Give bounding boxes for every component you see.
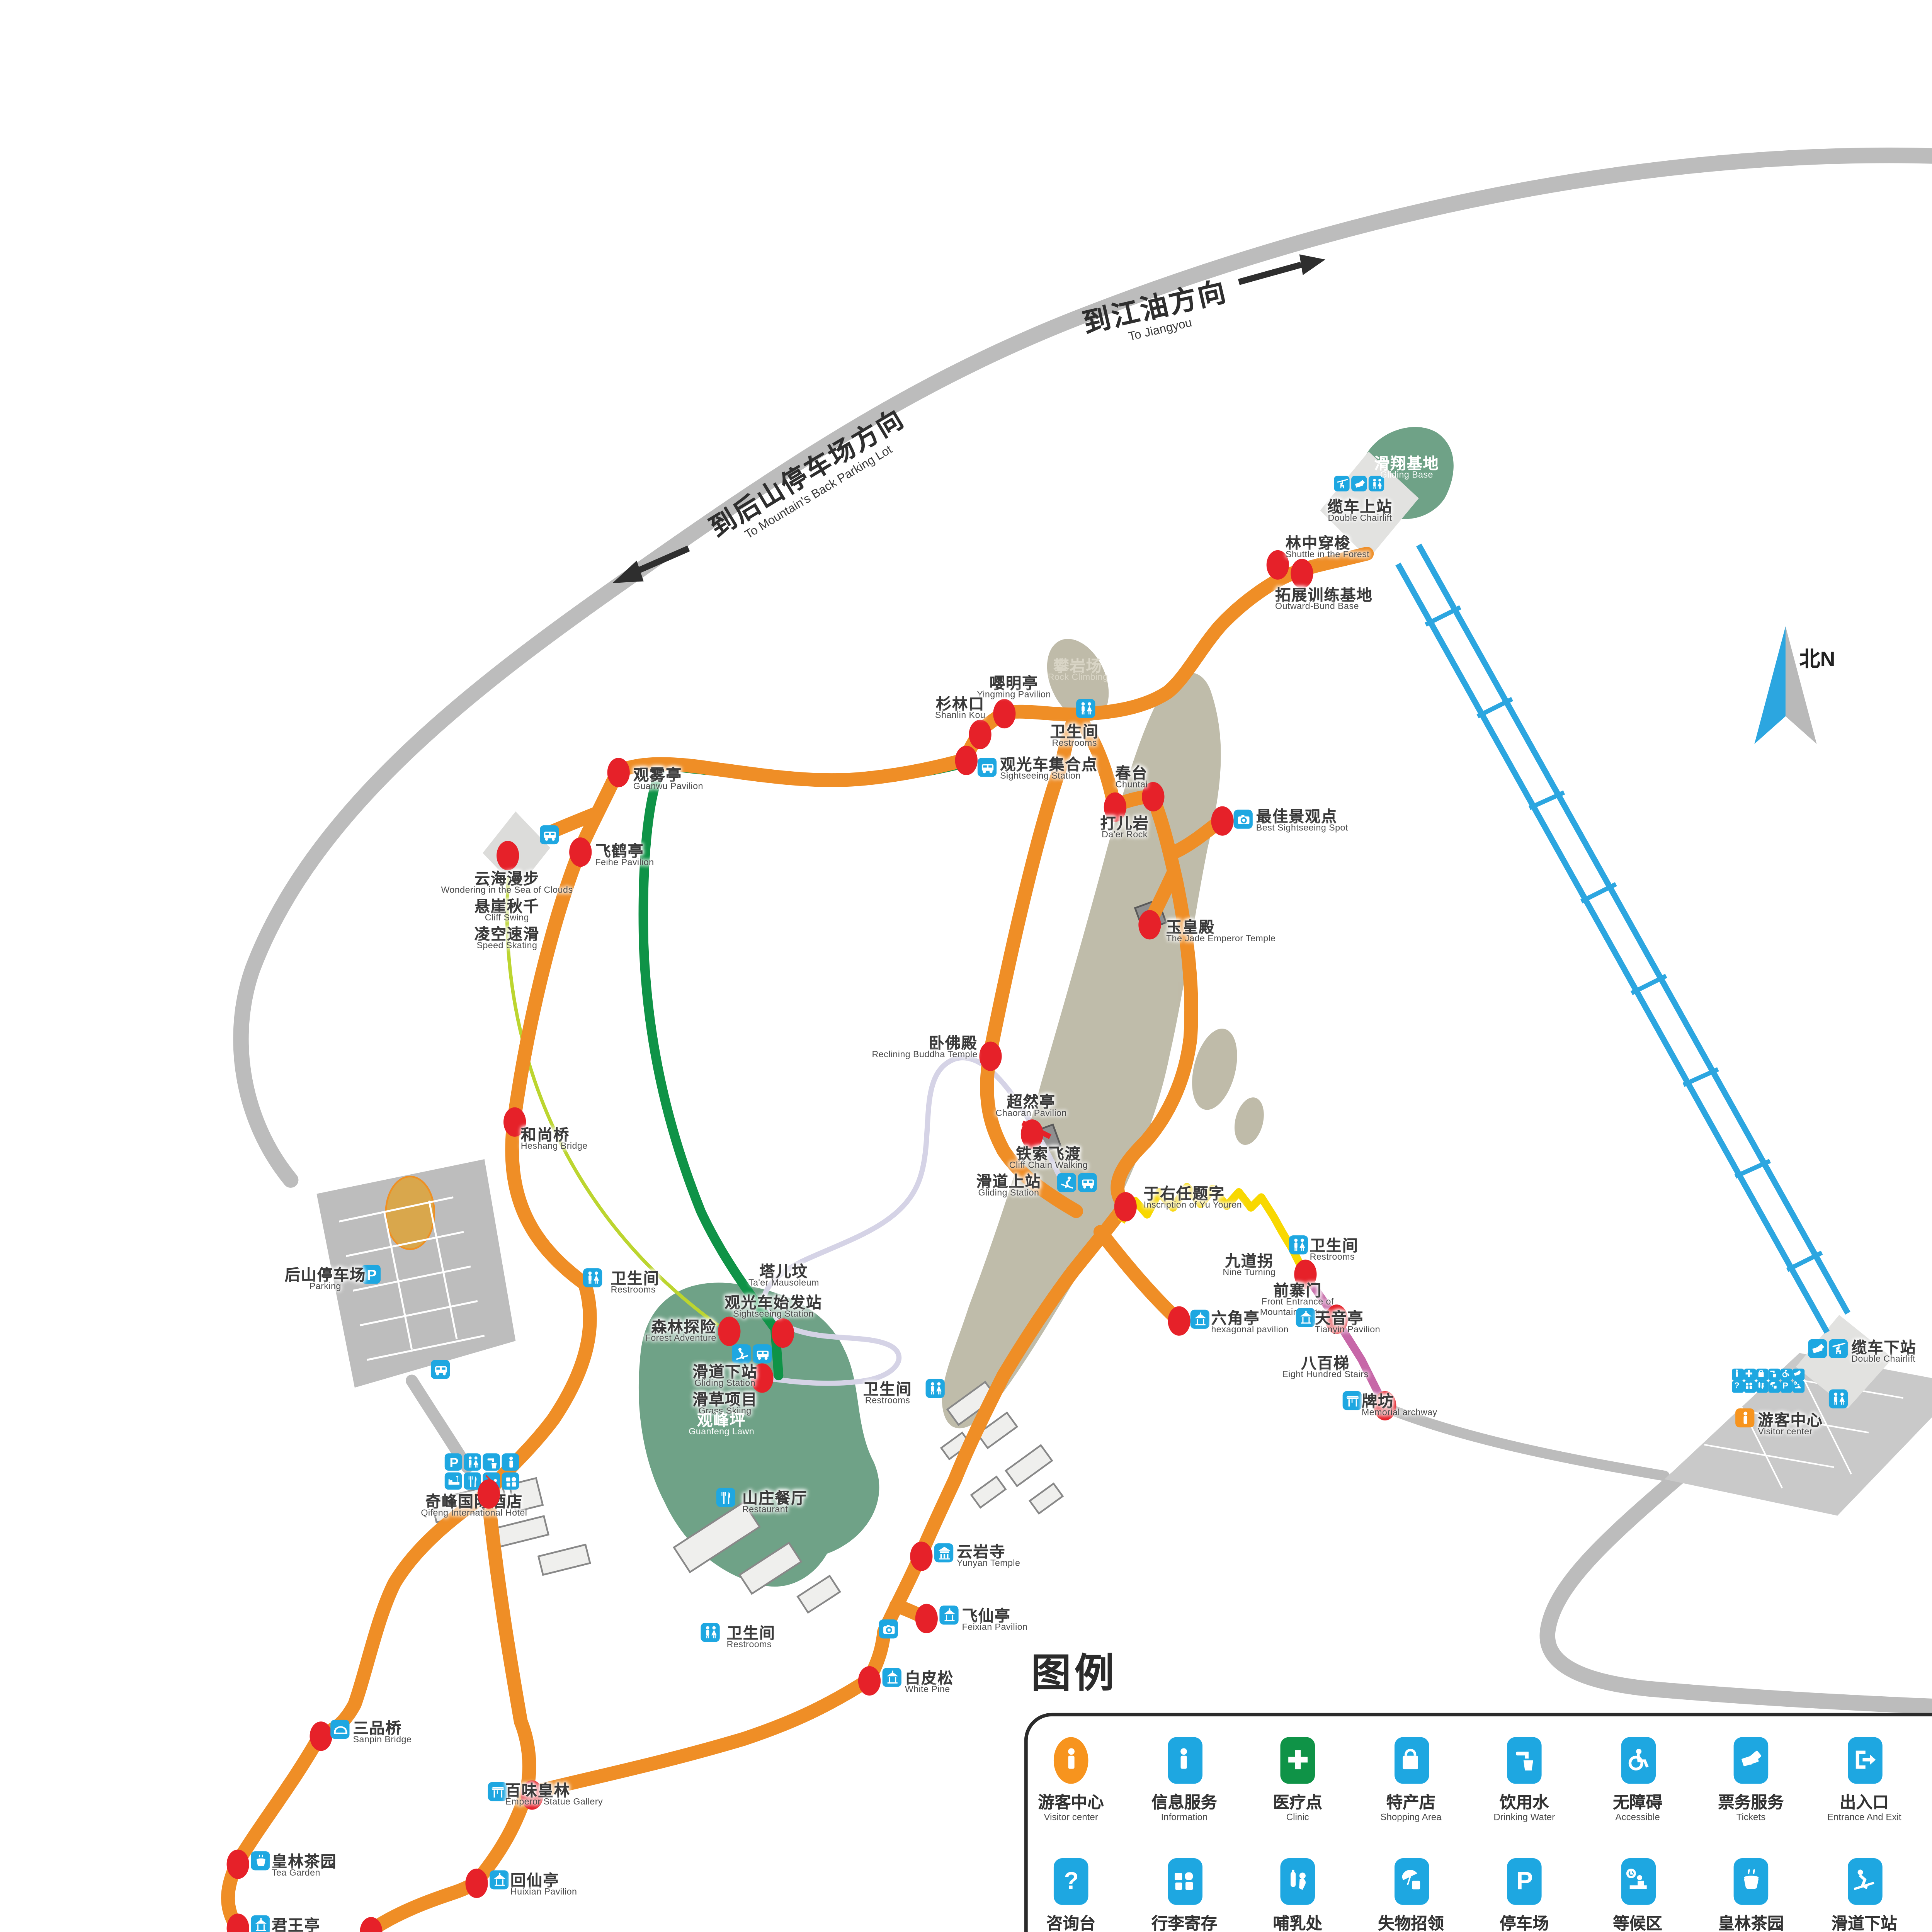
sight-spot-dot bbox=[968, 719, 990, 748]
info-icon bbox=[502, 1453, 519, 1471]
poi-label: 观雾亭Guanwu Pavilion bbox=[633, 767, 703, 794]
poi-label: 缆车上站Double Chairlift bbox=[1327, 498, 1392, 526]
q-icon bbox=[1732, 1381, 1743, 1392]
sight-spot-dot bbox=[1020, 1119, 1043, 1148]
sight-spot-dot bbox=[857, 1665, 880, 1695]
poi-label: 八百梯Eight Hundred Stairs bbox=[1282, 1355, 1368, 1382]
wc-icon bbox=[1076, 699, 1095, 718]
poi-label: 观光车集合点Sightseeing Station bbox=[1000, 756, 1098, 784]
baby-icon bbox=[1756, 1381, 1767, 1392]
wc-icon bbox=[1829, 1389, 1848, 1408]
sight-spot-dot bbox=[1265, 549, 1288, 579]
tea-icon bbox=[251, 1851, 270, 1870]
poi-label: 拓展训练基地Outward-Bund Base bbox=[1275, 587, 1373, 614]
legend-item-accessible: 无障碍Accessible bbox=[1582, 1737, 1693, 1824]
lost-icon bbox=[1768, 1381, 1779, 1392]
sight-spot-dot bbox=[568, 837, 591, 866]
wc-icon bbox=[701, 1623, 719, 1642]
poi-label: 云岩寺Yunyan Temple bbox=[957, 1543, 1020, 1571]
poi-label: 杉林口Shanlin Kou bbox=[935, 696, 985, 723]
legend-item-visitor-center: 游客中心Visitor center bbox=[1015, 1737, 1126, 1824]
legend-item-enquiry: 咨询台Enquiry bbox=[1015, 1858, 1126, 1932]
legend-item-entrance-and-exit: 出入口Entrance And Exit bbox=[1809, 1737, 1920, 1824]
pav-icon bbox=[1190, 1310, 1209, 1329]
poi-label: 滑道下站Gliding Station滑草项目Grass Skiing bbox=[692, 1363, 757, 1418]
water-icon bbox=[1507, 1737, 1542, 1784]
poi-label: 卧佛殿Reclining Buddha Temple bbox=[872, 1035, 978, 1062]
poi-label: 牌坊Memorial archway bbox=[1362, 1393, 1437, 1420]
poi-label: 打儿岩Da'er Rock bbox=[1100, 815, 1149, 842]
poi-label: 游客中心Visitor center bbox=[1758, 1412, 1823, 1439]
pav-icon bbox=[939, 1605, 958, 1624]
poi-label: 飞鹤亭Feihe Pavilion bbox=[595, 843, 654, 870]
legend-item-clinic: 医疗点Clinic bbox=[1242, 1737, 1353, 1824]
sight-spot-dot bbox=[309, 1721, 331, 1750]
q-icon bbox=[1054, 1858, 1088, 1905]
i-icon bbox=[1054, 1737, 1088, 1784]
wheel-icon bbox=[1781, 1369, 1792, 1380]
ticket-icon bbox=[1351, 476, 1367, 491]
temple-icon bbox=[934, 1543, 953, 1562]
cross-icon bbox=[1744, 1369, 1755, 1380]
sight-spot-dot bbox=[909, 1541, 932, 1570]
wait-icon bbox=[1793, 1381, 1804, 1392]
legend-item-information: 信息服务Information bbox=[1129, 1737, 1240, 1824]
poi-label: 观光车始发站Sightseeing Station bbox=[724, 1294, 822, 1321]
sight-spot-dot bbox=[606, 757, 629, 786]
bag-icon bbox=[1756, 1369, 1767, 1380]
bus-icon bbox=[753, 1344, 772, 1363]
sight-spot-dot bbox=[464, 1868, 487, 1897]
baby-icon bbox=[1280, 1858, 1315, 1905]
ski-down-icon bbox=[732, 1344, 751, 1363]
sight-spot-dot bbox=[771, 1318, 793, 1347]
sight-spot-dot bbox=[1113, 1191, 1136, 1221]
legend-item-drinking-water: 饮用水Drinking Water bbox=[1469, 1737, 1580, 1824]
sight-spot-dot bbox=[359, 1916, 381, 1932]
poi-label: 山庄餐厅Restaurant bbox=[742, 1490, 807, 1517]
pav-icon bbox=[490, 1870, 509, 1889]
wc-icon bbox=[464, 1453, 481, 1471]
sight-spot-dot bbox=[954, 745, 976, 774]
poi-label: 卫生间Restrooms bbox=[1310, 1237, 1359, 1265]
ticket-icon bbox=[1734, 1737, 1769, 1784]
p-icon bbox=[445, 1453, 462, 1471]
lugg-icon bbox=[1167, 1858, 1202, 1905]
wc-icon bbox=[926, 1379, 945, 1398]
ski-down-icon bbox=[1847, 1858, 1882, 1905]
legend-item-restrooms: 卫生间Restrooms bbox=[1922, 1737, 1932, 1824]
sight-spot-dot bbox=[717, 1316, 740, 1345]
poi-label: 塔儿坟Ta'er Mausoleum bbox=[748, 1263, 819, 1291]
legend-item-parking: 停车场Parking bbox=[1469, 1858, 1580, 1932]
exit-icon bbox=[1847, 1737, 1882, 1784]
lift-icon bbox=[1334, 476, 1349, 491]
poi-label: 卫生间Restrooms bbox=[863, 1381, 912, 1408]
poi-label: 九道拐Nine Turning bbox=[1223, 1253, 1276, 1280]
poi-label: 攀岩场Rock Climbing bbox=[1048, 658, 1108, 685]
poi-label: 卫生间Restrooms bbox=[611, 1270, 660, 1298]
poi-label: 滑翔基地Gliding Base bbox=[1374, 455, 1439, 483]
poi-label: 最佳景观点Best Sightseeing Spot bbox=[1256, 808, 1348, 835]
poi-label: 超然亭Chaoran Pavilion bbox=[996, 1094, 1067, 1121]
poi-label: 天音亭Tianyin Pavilion bbox=[1315, 1310, 1380, 1337]
lugg-icon bbox=[502, 1473, 519, 1490]
p-icon bbox=[1507, 1858, 1542, 1905]
poi-label: 卫生间Restrooms bbox=[727, 1625, 776, 1652]
poi-label: 卫生间Restrooms bbox=[1050, 723, 1099, 751]
poi-label: 嘤明亭Yingming Pavilion bbox=[977, 675, 1051, 702]
sight-spot-dot bbox=[914, 1603, 937, 1633]
legend-title: 图例 bbox=[1031, 1640, 1118, 1699]
pav-icon bbox=[883, 1668, 901, 1687]
bus-icon bbox=[431, 1360, 450, 1379]
wait-icon bbox=[1620, 1858, 1655, 1905]
wc-icon bbox=[583, 1268, 602, 1287]
sight-spot-dot bbox=[1138, 909, 1160, 939]
poi-label: 森林探险Forest Adventure bbox=[645, 1318, 716, 1346]
poi-label: 林中穿梭Shuttle in the Forest bbox=[1286, 535, 1369, 562]
poi-label: 飞仙亭Feixian Pavilion bbox=[962, 1607, 1028, 1635]
poi-label: 皇林茶园Tea Garden bbox=[272, 1853, 337, 1881]
ticket-icon bbox=[1808, 1339, 1827, 1358]
sight-spot-dot bbox=[1167, 1305, 1189, 1335]
sight-spot-dot bbox=[1210, 805, 1233, 835]
lost-icon bbox=[1394, 1858, 1429, 1905]
legend-item-lost-and-found: 失物招领Lost And Found bbox=[1355, 1858, 1466, 1932]
wheel-icon bbox=[1620, 1737, 1655, 1784]
bag-icon bbox=[1394, 1737, 1429, 1784]
poi-label: 春台Chuntai bbox=[1115, 765, 1148, 792]
legend-item-gliding-station: 滑道下站Gliding Station bbox=[1809, 1858, 1920, 1932]
water-icon bbox=[483, 1453, 500, 1471]
water-icon bbox=[1768, 1369, 1779, 1380]
poi-label: 滑道上站Gliding Station bbox=[976, 1173, 1041, 1201]
lift-icon bbox=[1829, 1339, 1848, 1358]
bus-icon bbox=[540, 825, 559, 844]
sight-spot-dot bbox=[226, 1913, 248, 1932]
sight-spot-dot bbox=[978, 1041, 1001, 1070]
wc-icon bbox=[1289, 1235, 1308, 1254]
legend-item-tickets: 票务服务Tickets bbox=[1696, 1737, 1806, 1824]
bridge-icon bbox=[330, 1720, 349, 1739]
legend-item-waiting-area: 等候区Waiting Area bbox=[1582, 1858, 1693, 1932]
poi-label: 铁索飞渡Cliff Chain Walking bbox=[1009, 1145, 1088, 1173]
poi-label: 缆车下站Double Chairlift bbox=[1851, 1339, 1916, 1367]
poi-label: 云海漫步Wondering in the Sea of Clouds悬崖秋千Cl… bbox=[441, 870, 573, 952]
pav-icon bbox=[1296, 1308, 1315, 1327]
food-icon bbox=[716, 1488, 735, 1507]
legend-item-baby-care: 哺乳处Baby Care bbox=[1242, 1858, 1353, 1932]
poi-label: 后山停车场Parking bbox=[285, 1267, 366, 1294]
lugg-icon bbox=[1744, 1381, 1755, 1392]
p-icon bbox=[1781, 1381, 1792, 1392]
bus-icon bbox=[1078, 1173, 1097, 1192]
legend-box: 游客中心Visitor center信息服务Information医疗点Clin… bbox=[1024, 1713, 1932, 1932]
ticket-icon bbox=[1793, 1369, 1804, 1380]
arch-icon bbox=[488, 1782, 507, 1801]
arch-icon bbox=[1343, 1391, 1362, 1410]
poi-label: 玉皇殿The Jade Emperor Temple bbox=[1166, 919, 1276, 946]
poi-label: 奇峰国际酒店Qifeng International Hotel bbox=[421, 1493, 527, 1520]
sight-spot-dot bbox=[496, 840, 518, 869]
sight-spot-dot bbox=[1290, 558, 1312, 587]
legend-item-gliding-station: 滑道上站Gliding Station bbox=[1922, 1858, 1932, 1932]
pav-icon bbox=[251, 1915, 270, 1932]
sight-spot-dot bbox=[992, 698, 1015, 728]
tea-icon bbox=[1734, 1858, 1769, 1905]
sight-spot-dot bbox=[226, 1849, 248, 1878]
poi-layer: 林中穿梭Shuttle in the Forest拓展训练基地Outward-B… bbox=[0, 0, 1932, 1932]
ski-up-icon bbox=[1057, 1173, 1076, 1192]
scenic-map: ? P bbox=[0, 0, 1932, 1932]
poi-label: 观峰坪Guanfeng Lawn bbox=[689, 1412, 754, 1439]
legend-item-tea: 皇林茶园Tea bbox=[1696, 1858, 1806, 1932]
i-icon bbox=[1735, 1408, 1754, 1427]
cross-icon bbox=[1280, 1737, 1315, 1784]
poi-label: 回仙亭Huixian Pavilion bbox=[510, 1872, 577, 1900]
cam-icon bbox=[1234, 810, 1253, 829]
bed-icon bbox=[445, 1473, 462, 1490]
bus-icon bbox=[978, 758, 997, 777]
poi-label: 百味皇林Emperor Statue Gallery bbox=[505, 1782, 603, 1810]
poi-label: 于右任题字Inscription of Yu Youren bbox=[1144, 1185, 1242, 1213]
legend-item-left-luggage: 行李寄存Left Luggage bbox=[1129, 1858, 1240, 1932]
poi-label: 和尚桥Heshang Bridge bbox=[521, 1126, 588, 1154]
poi-label: 君王亭Junwang Pavilion bbox=[272, 1917, 344, 1932]
compass-label: 北N bbox=[1799, 644, 1835, 673]
legend-item-shopping-area: 特产店Shopping Area bbox=[1355, 1737, 1466, 1824]
poi-label: 三品桥Sanpin Bridge bbox=[353, 1720, 412, 1747]
poi-label: 白皮松White Pine bbox=[905, 1670, 954, 1697]
info-icon bbox=[1167, 1737, 1202, 1784]
info-icon bbox=[1732, 1369, 1743, 1380]
cam-icon bbox=[879, 1619, 898, 1638]
